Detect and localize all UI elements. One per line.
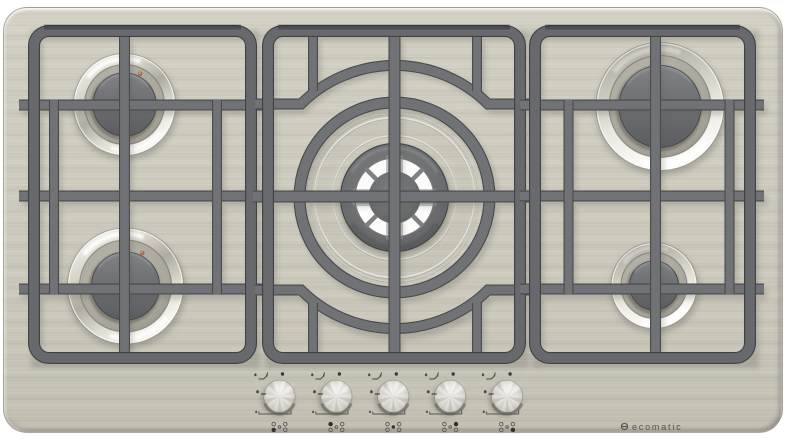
- svg-text:ecomatic: ecomatic: [632, 422, 682, 432]
